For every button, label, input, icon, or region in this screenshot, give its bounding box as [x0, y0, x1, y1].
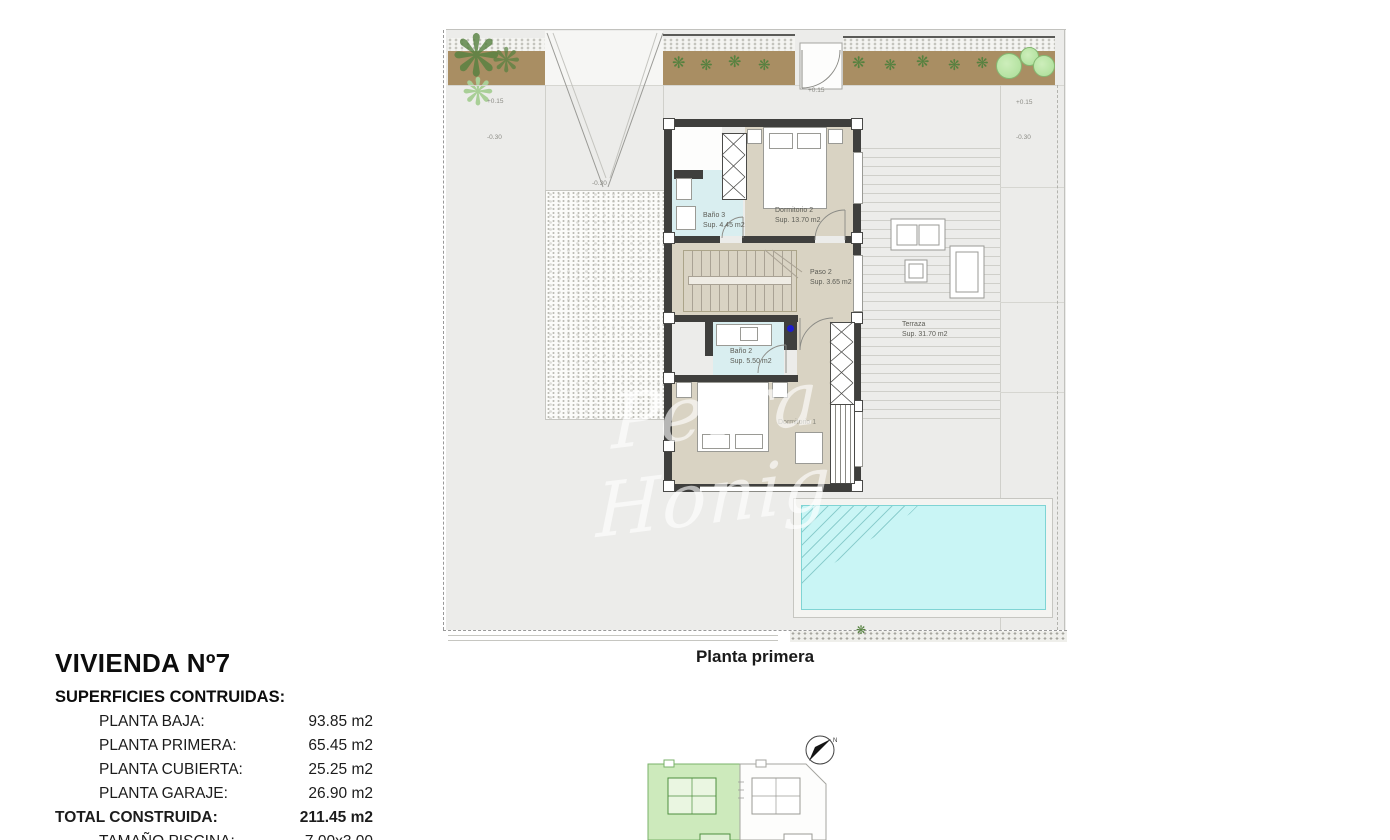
level-annotation: +0.15 [1016, 99, 1032, 106]
level-annotation: -0.30 [487, 134, 502, 141]
page-title: VIVIENDA Nº7 [55, 648, 373, 679]
room-label-paso2: Paso 2 Sup. 3.65 m2 [810, 268, 852, 288]
info-value: 211.45 m2 [300, 809, 373, 827]
info-row: PLANTA BAJA: 93.85 m2 [55, 713, 373, 731]
pedestrian-gate [800, 43, 842, 89]
room-name: Dormitorio 2 [775, 206, 821, 216]
compass-n-label: N [833, 738, 837, 744]
info-row: TAMAÑO PISCINA: 7.00x3.00 [55, 833, 373, 840]
room-name: Baño 3 [703, 211, 745, 221]
driveway-ramp-lines [547, 33, 663, 187]
level-annotation: -0.30 [592, 180, 607, 187]
room-label-terraza: Terraza Sup. 31.70 m2 [902, 320, 948, 340]
info-label: TAMAÑO PISCINA: [99, 833, 235, 840]
info-subtitle: SUPERFICIES CONTRUIDAS: [55, 688, 373, 707]
info-label: TOTAL CONSTRUIDA: [55, 809, 218, 827]
caption-planta-primera: Planta primera [650, 647, 860, 667]
room-label-banyo2: Baño 2 Sup. 5.50 m2 [730, 347, 772, 367]
room-label-dormitorio1: Dormitorio 1 [778, 418, 816, 428]
info-label: PLANTA BAJA: [99, 713, 205, 731]
info-row: PLANTA CUBIERTA: 25.25 m2 [55, 761, 373, 779]
info-row: PLANTA GARAJE: 26.90 m2 [55, 785, 373, 803]
room-area: Sup. 31.70 m2 [902, 330, 948, 340]
info-panel: VIVIENDA Nº7 SUPERFICIES CONTRUIDAS: PLA… [55, 648, 373, 840]
key-plan [648, 760, 826, 840]
room-name: Dormitorio 1 [778, 418, 816, 428]
room-label-dormitorio2: Dormitorio 2 Sup. 13.70 m2 [775, 206, 821, 226]
info-value: 7.00x3.00 [305, 833, 373, 840]
level-annotation: +0.15 [487, 98, 503, 105]
room-name: Terraza [902, 320, 948, 330]
floor-plan-sheet: ❋ ❋ ❋ ❋ ❋ ❋ ❋ ❋ ❋ ❋ ❋ ❋ ❋ [0, 0, 1390, 840]
info-total-row: TOTAL CONSTRUIDA: 211.45 m2 [55, 809, 373, 827]
info-value: 26.90 m2 [308, 785, 373, 803]
room-name: Baño 2 [730, 347, 772, 357]
info-value: 65.45 m2 [308, 737, 373, 755]
info-value: 25.25 m2 [308, 761, 373, 779]
room-area: Sup. 13.70 m2 [775, 216, 821, 226]
info-label: PLANTA GARAJE: [99, 785, 228, 803]
room-area: Sup. 3.65 m2 [810, 278, 852, 288]
room-area: Sup. 5.50 m2 [730, 357, 772, 367]
room-area: Sup. 4.45 m2 [703, 221, 745, 231]
compass: N [806, 736, 837, 764]
info-label: PLANTA CUBIERTA: [99, 761, 243, 779]
room-label-banyo3: Baño 3 Sup. 4.45 m2 [703, 211, 745, 231]
info-value: 93.85 m2 [308, 713, 373, 731]
room-name: Paso 2 [810, 268, 852, 278]
level-annotation: -0.30 [1016, 134, 1031, 141]
stair-break-lines [765, 250, 802, 278]
info-label: PLANTA PRIMERA: [99, 737, 237, 755]
info-row: PLANTA PRIMERA: 65.45 m2 [55, 737, 373, 755]
level-annotation: +0.15 [808, 87, 824, 94]
terrace-furniture [891, 219, 984, 298]
